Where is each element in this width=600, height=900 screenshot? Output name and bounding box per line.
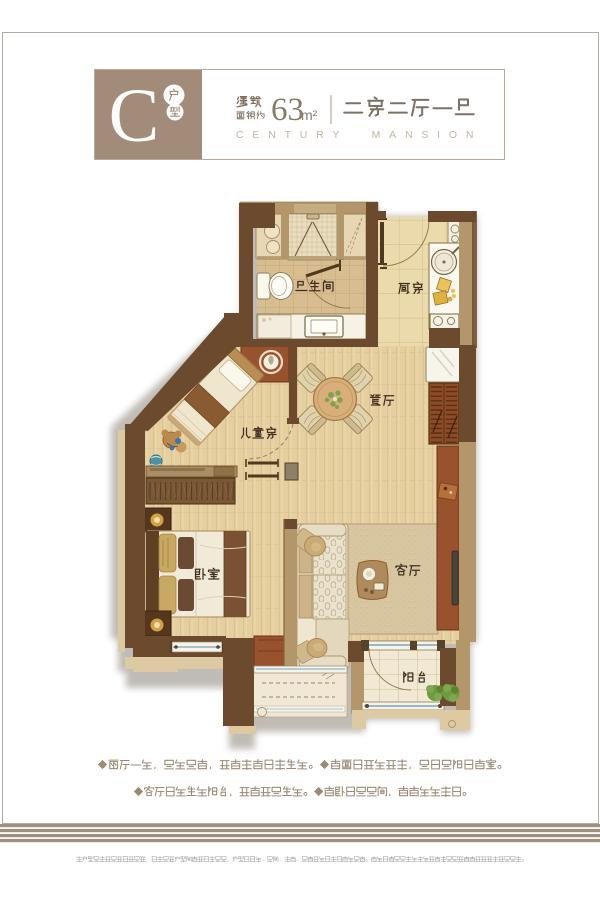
svg-text:CENTURY MANSION: CENTURY MANSION <box>236 129 482 141</box>
svg-text:m²: m² <box>301 107 318 123</box>
svg-text:C: C <box>109 74 160 158</box>
svg-text:63: 63 <box>271 92 304 128</box>
